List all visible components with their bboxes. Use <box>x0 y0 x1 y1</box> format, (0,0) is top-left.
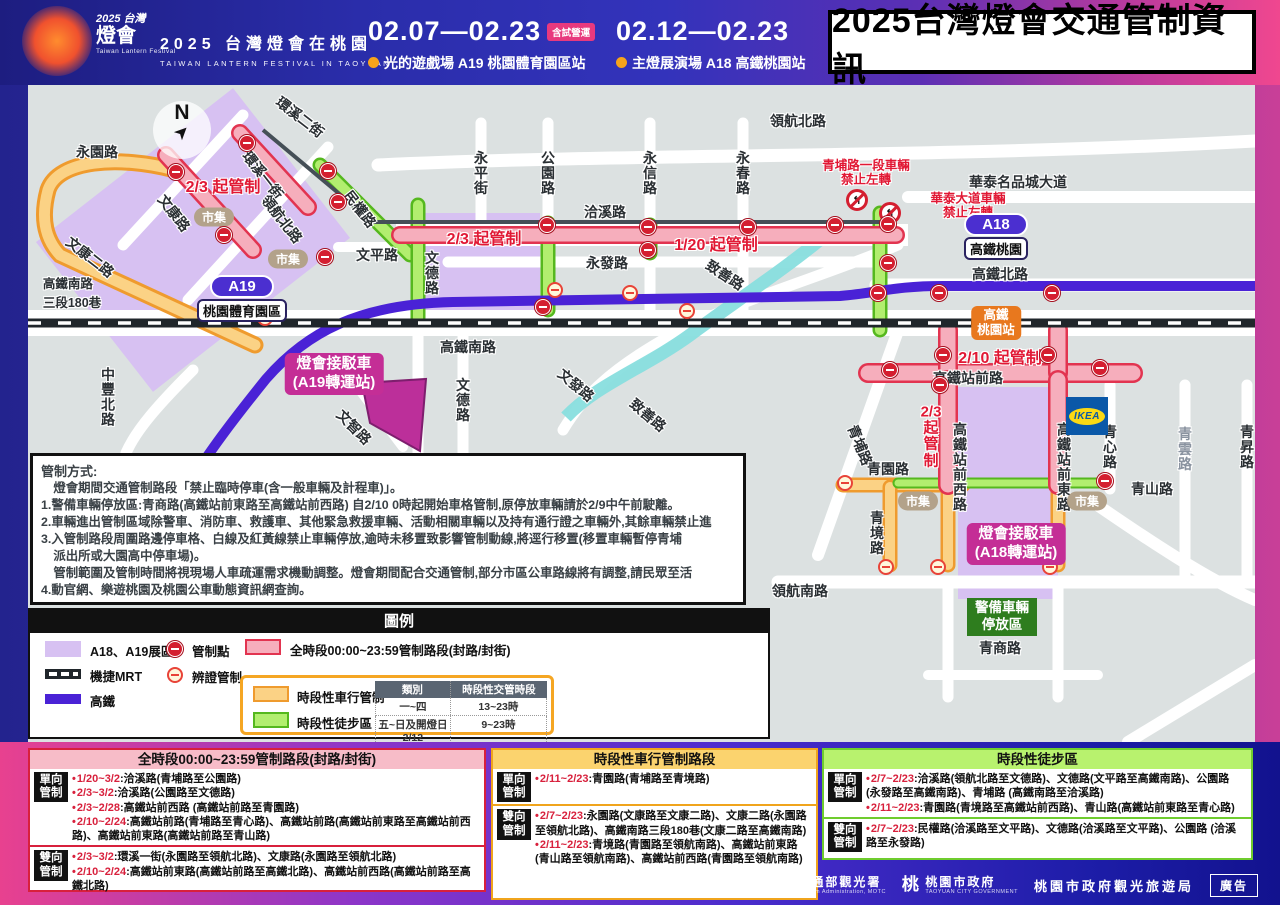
logo-year: 2025 <box>96 13 120 25</box>
legend-control-point-label: 管制點 <box>192 641 230 660</box>
station-a19: A19 桃園體育園區 <box>197 275 287 322</box>
taoyuan-city-logo: 桃 桃園市政府TAOYUAN CITY GOVERNMENT <box>902 876 1018 895</box>
permit-check-icon <box>930 559 946 575</box>
notice-line: 3.入管制路段周圍路邊停車格、白線及紅黃線禁止車輛停放,逾時未移置致影響管制動線… <box>41 531 735 548</box>
direction-label: 單向 管制 <box>828 772 862 802</box>
control-date-label: 2/3 起管制 <box>186 173 261 197</box>
control-point-icon <box>880 255 896 271</box>
control-items: •2/7~2/23:民權路(洽溪路至文平路)、文德路(洽溪路至文平路)、公園路 … <box>866 822 1247 852</box>
ikea-logo: IKEA <box>1066 397 1108 435</box>
direction-label: 單向 管制 <box>34 772 68 802</box>
road-label: 中豐北路 <box>98 367 118 427</box>
legend-zone-swatch <box>45 641 81 657</box>
road-label: 青境路 <box>867 511 887 556</box>
control-point-icon <box>168 164 184 180</box>
legend-control-point-icon <box>167 641 183 657</box>
panel-fulltime-title: 全時段00:00~23:59管制路段(封路/封街) <box>30 750 484 769</box>
taiwan-logo: TAIWAN <box>717 877 781 894</box>
ad-badge: 廣告 <box>1210 874 1258 897</box>
road-label: 文平路 <box>356 245 398 265</box>
notice-lines: 燈會期間交通管制路段「禁止臨時停車(含一般車輛及計程車)」。1.警備車輛停放區:… <box>41 480 735 599</box>
road-label: 領航北路 <box>770 111 826 131</box>
control-point-icon <box>932 377 948 393</box>
control-group: 雙向 管制•2/7~2/23:永園路(文康路至文康二路)、文康二路(永園路至領航… <box>493 804 816 868</box>
control-point-icon <box>1092 360 1108 376</box>
panel-timed-walk-title: 時段性徒步區 <box>824 750 1251 769</box>
control-items: •1/20~3/2:洽溪路(青埔路至公園路)•2/3~3/2:洽溪路(公園路至文… <box>72 772 480 843</box>
notice-line: 管制範圍及管制時間將視現場人車疏運需求機動調整。燈會期間配合交通管制,部分市區公… <box>41 565 735 582</box>
control-items: •2/3~3/2:環溪一街(永園路至領航北路)、文康路(永園路至領航北路)•2/… <box>72 850 480 893</box>
market-pill: 市集 <box>194 208 234 227</box>
notice-line: 2.車輛進出管制區域除警車、消防車、救護車、其他緊急救援車輛、活動相關車輛以及持… <box>41 514 735 531</box>
permit-check-icon <box>679 303 695 319</box>
period-a18: 02.12—02.23 主燈展演場 A18 高鐵桃園站 <box>616 16 805 73</box>
legend-hsr-label: 高鐵 <box>90 691 115 710</box>
period2-venue: 主燈展演場 A18 高鐵桃園站 <box>616 53 805 73</box>
control-items: •2/11~2/23:青園路(青埔路至青境路) <box>535 772 812 802</box>
footer-logos: TAIWAN 交通部觀光署Tourism Administration, MOT… <box>717 874 1258 897</box>
orange-dot-icon <box>616 57 627 68</box>
period2-dates: 02.12—02.23 <box>616 16 789 47</box>
road-label: 永平街 <box>471 151 491 196</box>
control-point-icon <box>935 347 951 363</box>
control-point-icon <box>539 217 555 233</box>
logo-place: 台灣 <box>124 13 146 25</box>
map-frame: N➤ 永園路文平路洽溪路永發路領航北路高鐵南路華泰名品城大道高鐵北路高鐵站前路青… <box>0 85 1280 742</box>
control-item: •2/3~3/2:環溪一街(永園路至領航北路)、文康路(永園路至領航北路) <box>72 850 480 864</box>
market-pill: 市集 <box>898 492 938 511</box>
market-pill: 市集 <box>1067 492 1107 511</box>
notice-title: 管制方式: <box>41 461 735 480</box>
legend-table-row: 一~四13~23時 <box>375 698 547 716</box>
control-point-icon <box>827 217 843 233</box>
legend-timed-traffic-label: 時段性車行管制 <box>297 687 385 706</box>
control-group: 單向 管制•2/11~2/23:青園路(青埔路至青境路) <box>493 769 816 804</box>
legend-table-row: 五~日及開燈日2/129~23時 <box>375 716 547 745</box>
control-item: •2/3~2/28:高鐵站前西路 (高鐵站前路至青園路) <box>72 801 480 815</box>
police-parking-label: 警備車輛 停放區 <box>967 598 1037 636</box>
event-title-cn: 2025 台灣燈會在桃園 <box>160 30 391 54</box>
control-group: 雙向 管制•2/3~3/2:環溪一街(永園路至領航北路)、文康路(永園路至領航北… <box>30 845 484 895</box>
road-label: 領航南路 <box>772 581 828 601</box>
legend-permit-point-icon <box>167 667 183 683</box>
control-item: •2/3~3/2:洽溪路(公園路至文德路) <box>72 786 480 800</box>
compass-north-icon: N➤ <box>153 101 211 159</box>
control-point-icon <box>1097 473 1113 489</box>
bottom-section: 全時段00:00~23:59管制路段(封路/封街) 單向 管制•1/20~3/2… <box>0 742 1280 905</box>
control-point-icon <box>535 299 551 315</box>
panel-fulltime-roads: 全時段00:00~23:59管制路段(封路/封街) 單向 管制•1/20~3/2… <box>28 748 486 892</box>
no-left-turn-icon: ↰ <box>846 189 868 211</box>
legend-fulltime-swatch <box>245 639 281 655</box>
panel-timed-walk-roads: 時段性徒步區 單向 管制•2/7~2/23:洽溪路(領航北路至文德路)、文德路(… <box>822 748 1253 860</box>
control-point-icon <box>216 227 232 243</box>
control-item: •2/7~2/23:永園路(文康路至文康二路)、文康二路(永園路至領航北路)、高… <box>535 809 812 838</box>
control-item: •2/11~2/23:青園路(青境路至高鐵站前西路)、青山路(高鐵站前東路至青心… <box>866 801 1247 815</box>
road-label: 青山路 <box>1131 479 1173 499</box>
control-point-icon <box>931 285 947 301</box>
motc-logo: 交通部觀光署Tourism Administration, MOTC <box>797 876 886 895</box>
control-item: •2/7~2/23:民權路(洽溪路至文平路)、文德路(洽溪路至文平路)、公園路 … <box>866 822 1247 851</box>
control-date-label: 2/3 起 管 制 <box>921 405 942 470</box>
station-a19-code: A19 <box>210 275 274 298</box>
page-title: 2025台灣燈會交通管制資訊 <box>828 10 1256 74</box>
control-notice-panel: 管制方式: 燈會期間交通管制路段「禁止臨時停車(含一般車輛及計程車)」。1.警備… <box>30 453 746 605</box>
control-items: •2/7~2/23:洽溪路(領航北路至文德路)、文德路(文平路至高鐵南路)、公園… <box>866 772 1247 815</box>
control-point-icon <box>882 362 898 378</box>
notice-line: 1.警備車輛停放區:青商路(高鐵站前東路至高鐵站前西路) 自2/10 0時起開始… <box>41 497 735 514</box>
control-items: •2/7~2/23:永園路(文康路至文康二路)、文康二路(永園路至領航北路)、高… <box>535 809 812 866</box>
legend-timed-walk-swatch <box>253 712 289 728</box>
direction-label: 雙向 管制 <box>497 809 531 839</box>
orange-dot-icon <box>368 57 379 68</box>
station-a18-name: 高鐵桃園 <box>964 237 1028 260</box>
permit-check-icon <box>878 559 894 575</box>
road-label: 高鐵北路 <box>972 264 1028 284</box>
legend-hsr-icon <box>45 694 81 704</box>
control-point-icon <box>870 285 886 301</box>
control-point-icon <box>640 219 656 235</box>
market-pill: 市集 <box>268 250 308 269</box>
control-point-icon <box>317 249 333 265</box>
notice-line: 派出所或大園高中停車場)。 <box>41 548 735 565</box>
direction-label: 單向 管制 <box>497 772 531 802</box>
road-label: 華泰名品城大道 <box>969 172 1067 192</box>
legend-panel: 圖例 A18、A19展區 機捷MRT 高鐵 管制點 辨證管制 全時段00:00~… <box>28 608 770 739</box>
permit-check-icon <box>622 285 638 301</box>
header-bar: 2025 台灣 燈會 Taiwan Lantern Festival 2025 … <box>0 0 1280 85</box>
road-label: 高鐵南路 三段180巷 <box>43 273 101 311</box>
direction-label: 雙向 管制 <box>828 822 862 852</box>
lantern-logo-icon <box>18 2 96 82</box>
notice-line: 燈會期間交通管制路段「禁止臨時停車(含一般車輛及計程車)」。 <box>41 480 735 497</box>
panel-timed-traffic-title: 時段性車行管制路段 <box>493 750 816 769</box>
period1-venue: 光的遊戲場 A19 桃園體育園區站 <box>368 53 595 73</box>
legend-timed-traffic-swatch <box>253 686 289 702</box>
control-item: •1/20~3/2:洽溪路(青埔路至公園路) <box>72 772 480 786</box>
road-label: 文德路 <box>422 251 442 296</box>
road-label: 高鐵站前西路 <box>950 422 970 512</box>
station-a18: A18 高鐵桃園 <box>964 213 1028 260</box>
event-title: 2025 台灣燈會在桃園 TAIWAN LANTERN FESTIVAL IN … <box>160 30 391 68</box>
legend-mrt-label: 機捷MRT <box>90 666 142 685</box>
legend-schedule-table: 類別時段性交管時段一~四13~23時五~日及開燈日2/129~23時 <box>375 681 547 731</box>
period1-dates: 02.07—02.23 <box>368 16 541 47</box>
peach-icon: 桃 <box>902 875 919 894</box>
poster: 2025 台灣 燈會 Taiwan Lantern Festival 2025 … <box>0 0 1280 905</box>
legend-mrt-icon <box>45 669 81 679</box>
road-label: 青昇路 <box>1237 425 1255 470</box>
station-a19-name: 桃園體育園區 <box>197 299 287 322</box>
control-group: 雙向 管制•2/7~2/23:民權路(洽溪路至文平路)、文德路(洽溪路至文平路)… <box>824 817 1251 854</box>
control-date-label: 2/3 起管制 <box>447 225 522 249</box>
control-group: 單向 管制•1/20~3/2:洽溪路(青埔路至公園路)•2/3~3/2:洽溪路(… <box>30 769 484 845</box>
legend-title: 圖例 <box>30 610 768 633</box>
legend-timed-box: 時段性車行管制 時段性徒步區 類別時段性交管時段一~四13~23時五~日及開燈日… <box>240 675 554 735</box>
legend-zone-label: A18、A19展區 <box>90 641 173 660</box>
road-label: 高鐵南路 <box>440 337 496 357</box>
road-label: 洽溪路 <box>584 202 626 222</box>
control-point-icon <box>880 216 896 232</box>
control-date-label: 2/10 起管制 <box>958 344 1042 368</box>
control-point-icon <box>1044 285 1060 301</box>
road-label: 青商路 <box>979 638 1021 658</box>
control-group: 單向 管制•2/7~2/23:洽溪路(領航北路至文德路)、文德路(文平路至高鐵南… <box>824 769 1251 817</box>
road-label: 青雲路 <box>1175 427 1195 472</box>
permit-check-icon <box>837 475 853 491</box>
trial-badge: 含試營運 <box>547 23 595 41</box>
control-item: •2/7~2/23:洽溪路(領航北路至文德路)、文德路(文平路至高鐵南路)、公園… <box>866 772 1247 801</box>
road-label: 永春路 <box>733 151 753 196</box>
direction-label: 雙向 管制 <box>34 850 68 880</box>
shuttle-a19-label: 燈會接駁車 (A19轉運站) <box>285 353 384 395</box>
hsr-taoyuan-station-label: 高鐵 桃園站 <box>971 306 1021 340</box>
shuttle-a18-label: 燈會接駁車 (A18轉運站) <box>967 523 1066 565</box>
road-label: 永園路 <box>76 142 118 162</box>
control-item: •2/11~2/23:青境路(青園路至領航南路)、高鐵站前東路(青山路至領航南路… <box>535 838 812 867</box>
road-label: 文德路 <box>453 378 473 423</box>
control-point-icon <box>320 163 336 179</box>
legend-permit-point-label: 辨證管制 <box>192 667 242 686</box>
traffic-map: N➤ 永園路文平路洽溪路永發路領航北路高鐵南路華泰名品城大道高鐵北路高鐵站前路青… <box>28 85 1255 745</box>
control-item: •2/10~2/24:高鐵站前東路(高鐵站前路至高鐵北路)、高鐵站前西路(高鐵站… <box>72 865 480 894</box>
tourism-bureau-label: 桃園市政府觀光旅遊局 <box>1034 876 1194 895</box>
legend-fulltime-label: 全時段00:00~23:59管制路段(封路/封街) <box>290 640 511 659</box>
control-point-icon <box>740 219 756 235</box>
control-item: •2/11~2/23:青園路(青埔路至青境路) <box>535 772 812 786</box>
control-point-icon <box>1040 347 1056 363</box>
station-a18-code: A18 <box>964 213 1028 236</box>
event-title-en: TAIWAN LANTERN FESTIVAL IN TAOYUAN <box>160 59 391 68</box>
road-label: 永發路 <box>586 253 628 273</box>
legend-timed-walk-label: 時段性徒步區 <box>297 713 372 732</box>
control-point-icon <box>239 135 255 151</box>
legend-table-header: 類別時段性交管時段 <box>375 681 547 698</box>
no-left-turn-warning-label: 青埔路一段車輛 禁止左轉 <box>822 159 910 188</box>
road-label: 永信路 <box>640 151 660 196</box>
road-label: 公園路 <box>538 151 558 196</box>
control-item: •2/10~2/24:高鐵站前路(青埔路至青心路)、高鐵站前路(高鐵站前東路至高… <box>72 815 480 844</box>
notice-line: 4.動官網、樂遊桃園及桃園公車動態資訊網查詢。 <box>41 582 735 599</box>
permit-check-icon <box>547 282 563 298</box>
control-point-icon <box>640 242 656 258</box>
control-point-icon <box>330 194 346 210</box>
period-a19: 02.07—02.23含試營運 光的遊戲場 A19 桃園體育園區站 <box>368 16 595 73</box>
